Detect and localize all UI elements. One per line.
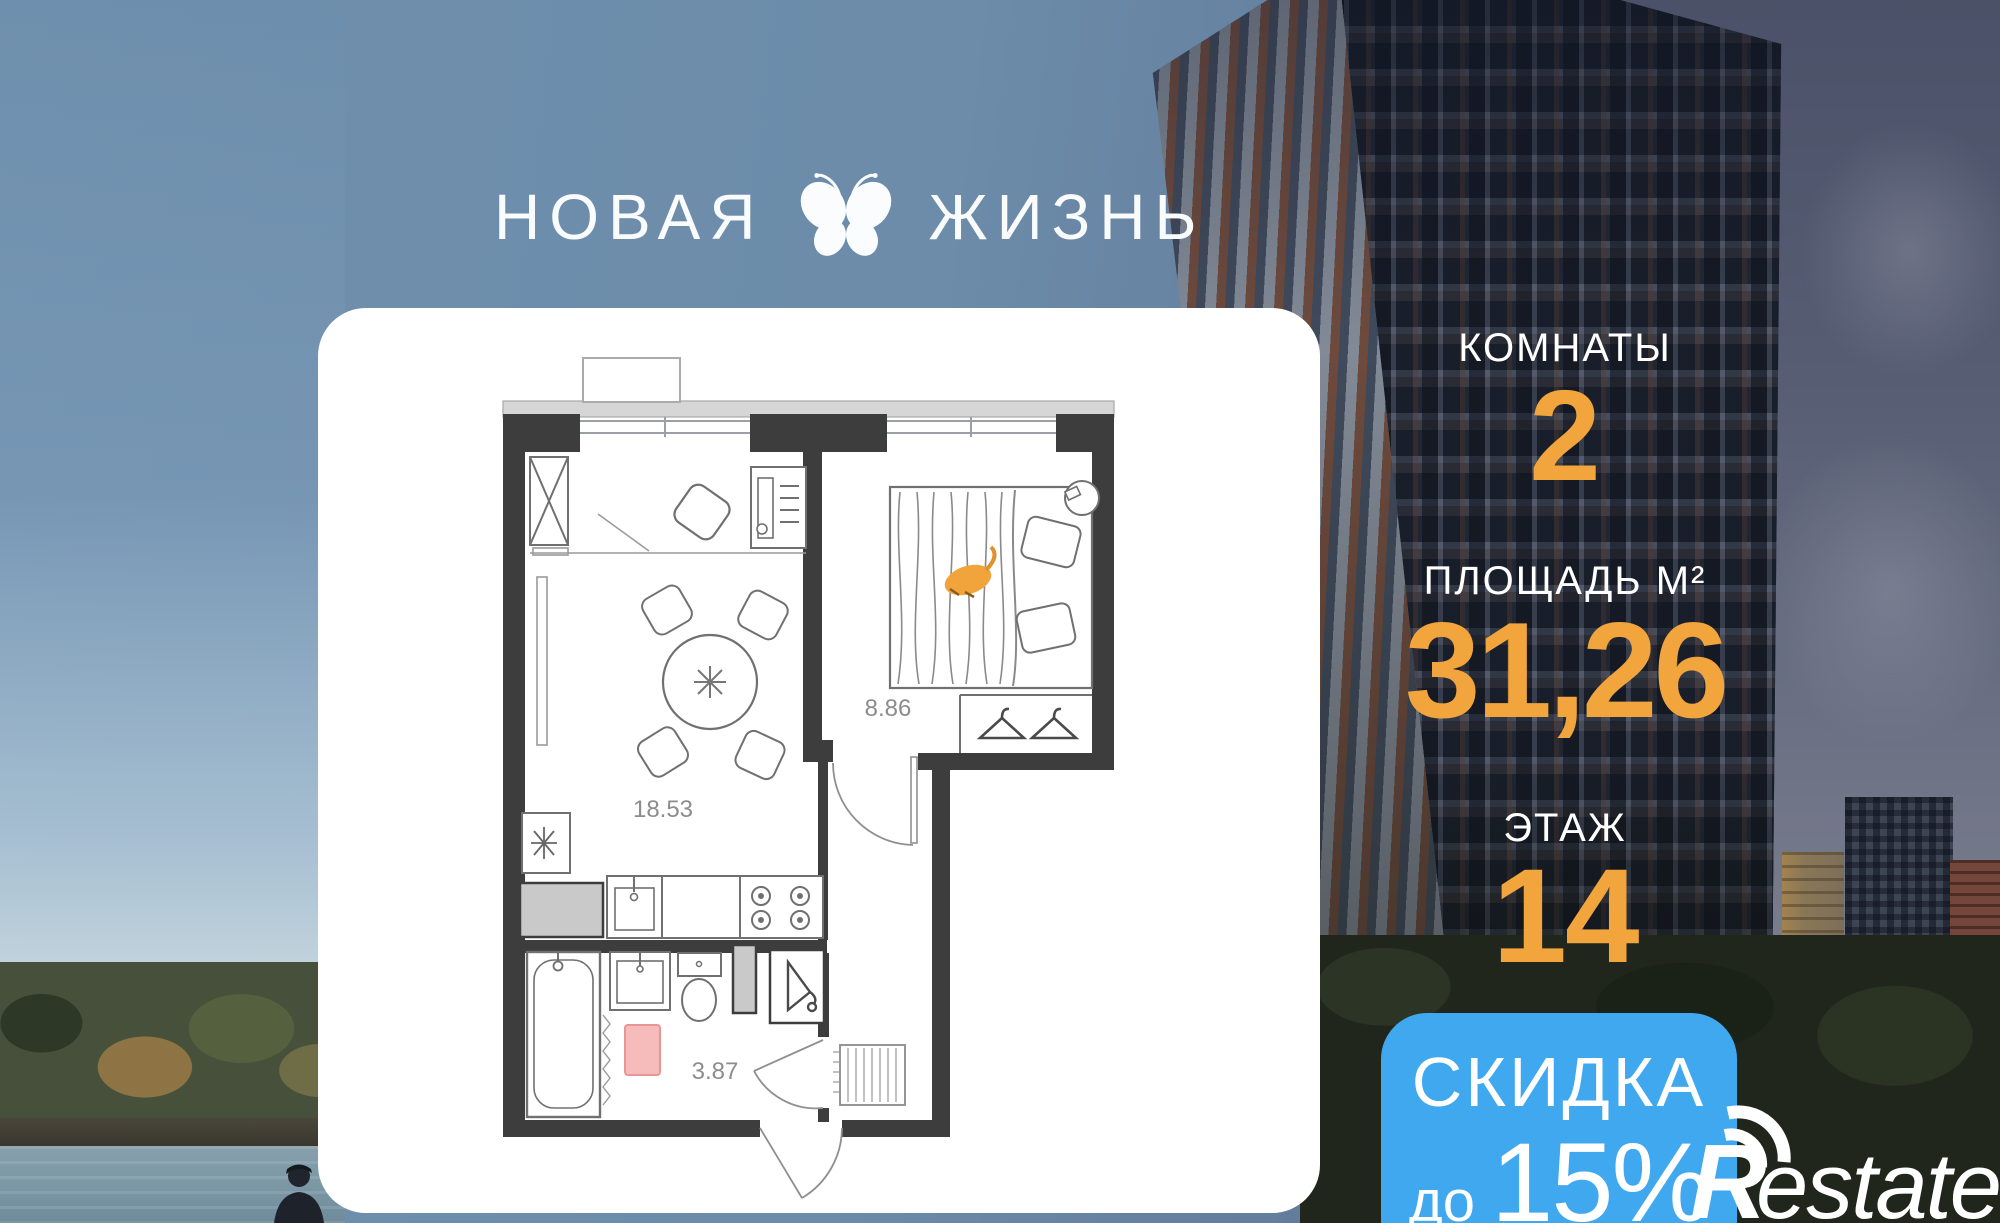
real-estate-ad: НОВАЯ ЖИЗНЬ xyxy=(0,0,2000,1223)
logo-word-left: НОВАЯ xyxy=(494,185,764,249)
bedroom-furniture xyxy=(890,481,1099,753)
dining-set xyxy=(635,582,791,782)
floor-plan: 18.53 8.86 3.87 xyxy=(495,350,1125,1206)
window-bedroom xyxy=(887,417,1056,437)
logo-word-right: ЖИЗНЬ xyxy=(928,185,1205,249)
desk xyxy=(751,467,806,548)
stove xyxy=(740,876,823,938)
boiler-box xyxy=(522,813,570,873)
wardrobe-x xyxy=(530,457,568,545)
hall-hook-cabinet xyxy=(770,950,824,1023)
towel-zigzag xyxy=(603,1015,610,1105)
shaft xyxy=(733,945,756,1013)
hanger-icon xyxy=(1032,709,1076,738)
bedroom-wardrobe xyxy=(960,695,1092,753)
rooms-value: 2 xyxy=(1390,375,1740,498)
area-value: 31,26 xyxy=(1390,606,1740,735)
hanger-icon xyxy=(980,709,1024,738)
floorplan-card: 18.53 8.86 3.87 xyxy=(318,308,1320,1213)
restate-text: estate xyxy=(1756,1133,2000,1223)
bath-rug xyxy=(625,1025,660,1075)
sky-horizon-glow xyxy=(0,0,345,1030)
trees-autumn xyxy=(0,962,345,1137)
butterfly-icon xyxy=(794,168,898,266)
toilet xyxy=(678,953,721,1021)
balcony-outline xyxy=(583,358,680,402)
desk-chair xyxy=(671,481,734,543)
bathroom-fixtures xyxy=(527,945,824,1117)
floor-value: 14 xyxy=(1390,853,1740,980)
living-area-label: 18.53 xyxy=(633,796,693,823)
bed xyxy=(890,487,1092,688)
counter xyxy=(662,876,740,938)
apartment-stats: КОМНАТЫ 2 ПЛОЩАДЬ М² 31,26 ЭТАЖ 14 xyxy=(1390,325,1740,980)
door-mat xyxy=(833,1045,905,1105)
restate-watermark: R estate xyxy=(1632,1082,2000,1223)
brand-logo: НОВАЯ ЖИЗНЬ xyxy=(494,168,1205,266)
bathroom-door xyxy=(754,1040,823,1108)
bedroom-area-label: 8.86 xyxy=(865,695,912,722)
snowflake-icon xyxy=(531,827,557,859)
fridge xyxy=(520,883,603,937)
bathtub xyxy=(527,952,600,1117)
discount-prefix: до xyxy=(1409,1168,1475,1223)
table-plant-icon xyxy=(694,666,726,698)
window-living xyxy=(580,417,750,437)
bedroom-door xyxy=(833,757,917,845)
radiator xyxy=(537,577,547,745)
entrance-door xyxy=(760,1128,842,1198)
kitchen-sink xyxy=(607,876,662,938)
bath-sink xyxy=(610,952,670,1010)
bathroom-area-label: 3.87 xyxy=(692,1058,739,1085)
kitchen xyxy=(520,876,823,938)
